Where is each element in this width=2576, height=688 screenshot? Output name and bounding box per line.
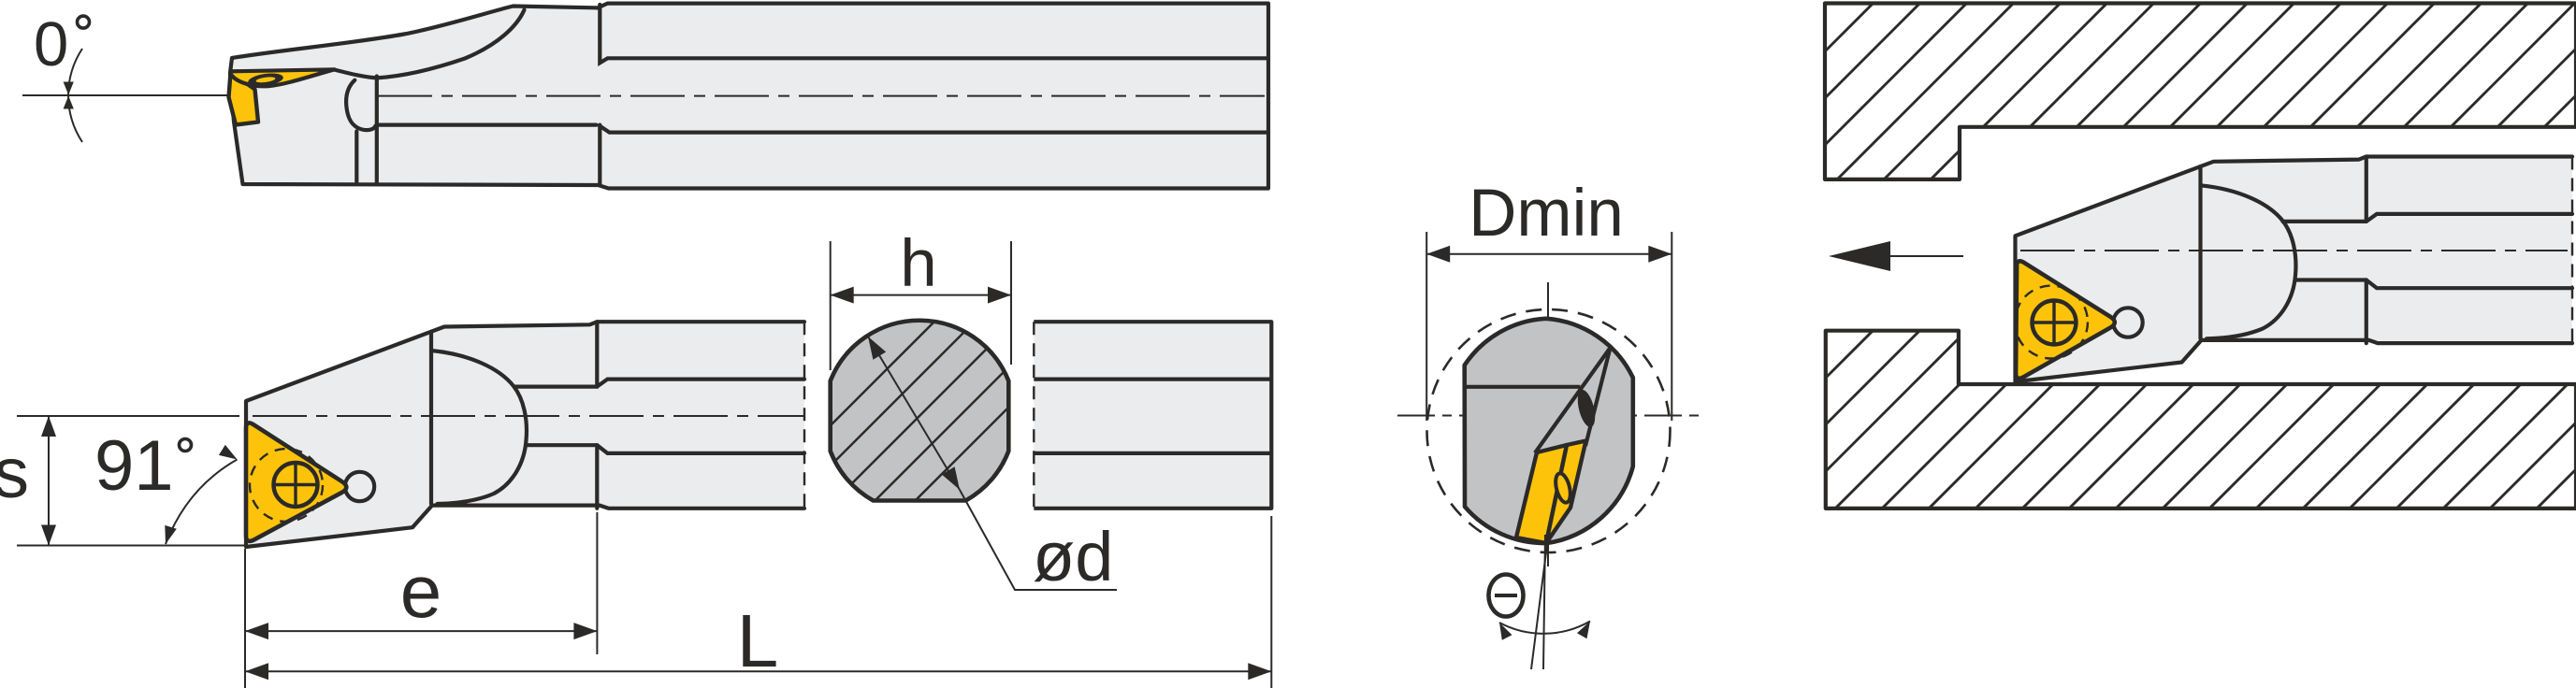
svg-text:e: e xyxy=(400,550,442,633)
svg-text:s: s xyxy=(0,434,29,513)
svg-text:L: L xyxy=(737,599,779,682)
svg-text:h: h xyxy=(900,227,937,301)
svg-text:Dmin: Dmin xyxy=(1469,177,1624,251)
svg-text:91: 91 xyxy=(94,426,174,506)
svg-text:0: 0 xyxy=(34,9,68,79)
svg-text:ød: ød xyxy=(1033,518,1113,595)
